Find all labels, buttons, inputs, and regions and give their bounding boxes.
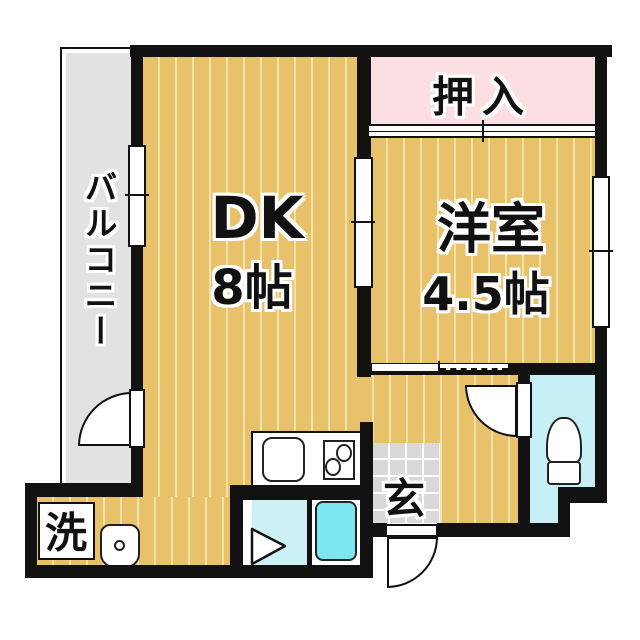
wall-kitchen-bath (230, 485, 373, 500)
sliding-door-western-hall-tick (438, 361, 440, 375)
wall-left (25, 483, 37, 578)
toilet-tank (547, 461, 581, 485)
sliding-door-dashed-western-hall (440, 363, 508, 370)
wall-notch-horiz (560, 487, 607, 503)
wall-top (130, 45, 612, 57)
sliding-door-icon-western-hall (372, 363, 440, 372)
balcony-door-leaf (129, 389, 145, 448)
toilet-icon (546, 417, 582, 465)
western-room-label: 洋室 (437, 185, 545, 264)
dk-size-label: 8帖 (211, 248, 292, 318)
floor-plan: バルコニー DK 8帖 押入 洋室 4.5帖 玄 洗 (0, 0, 640, 640)
window-western-tick (589, 250, 613, 252)
wall-laundry-top (25, 483, 143, 497)
entrance-label: 玄 (383, 466, 425, 527)
closet-label: 押入 (432, 64, 532, 125)
wall-bottom (25, 565, 373, 578)
wall-dk-genkan (360, 422, 373, 523)
door-swing-arc-icon-entrance (387, 537, 438, 588)
window-icon-western (592, 176, 610, 328)
window-balcony-tick (125, 194, 149, 196)
sliding-door-dk-western-tick (351, 221, 375, 223)
stove-burner-1 (336, 444, 352, 462)
kitchen-sink-icon (262, 437, 305, 482)
bathtub-icon (315, 501, 357, 561)
toilet-door-leaf (516, 382, 532, 438)
wall-genkan-step (360, 523, 373, 578)
dk-label: DK (210, 184, 303, 252)
wall-bottom-right (437, 523, 570, 537)
window-icon-balcony (128, 145, 146, 247)
washbasin-drain (114, 540, 125, 551)
folding-door-icon (249, 524, 289, 568)
western-room-size-label: 4.5帖 (422, 258, 550, 324)
stove-burner-2 (325, 458, 341, 476)
laundry-label: 洗 (45, 500, 87, 561)
balcony-label: バルコニー (74, 170, 122, 350)
